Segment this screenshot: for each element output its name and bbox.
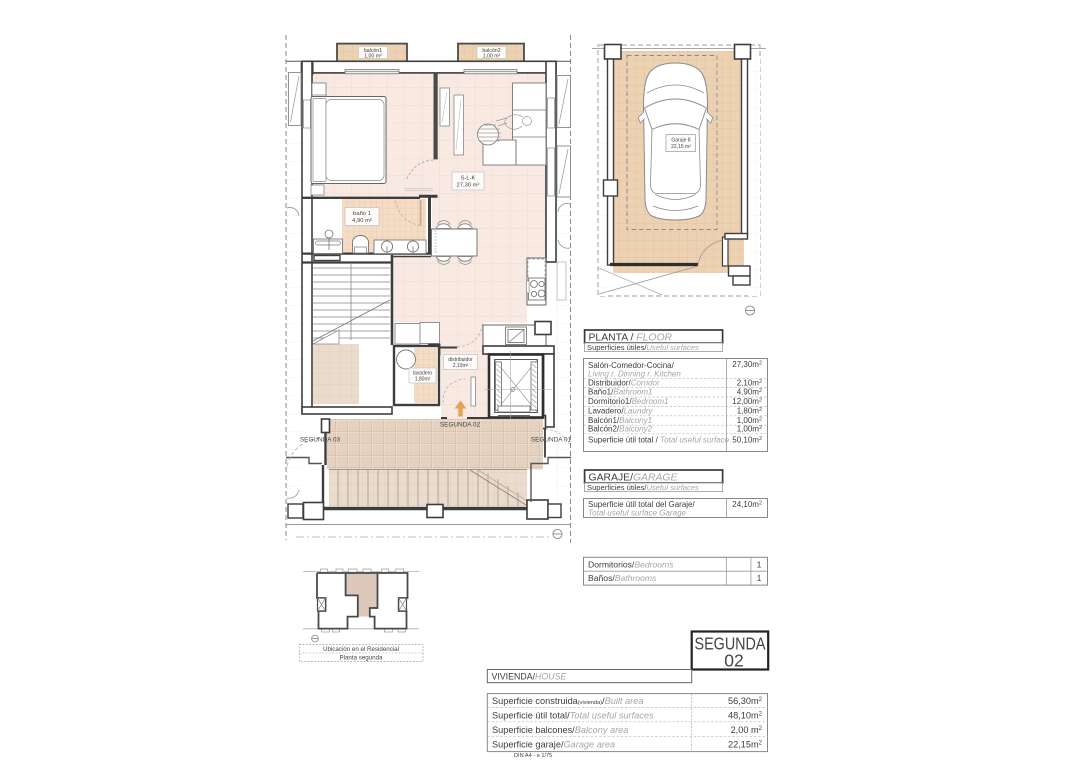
svg-text:1,80m²: 1,80m² bbox=[415, 377, 431, 383]
svg-text:SEGUNDA 01: SEGUNDA 01 bbox=[531, 437, 572, 444]
svg-text:1: 1 bbox=[757, 573, 762, 583]
svg-text:Distribuidor/Corridor: Distribuidor/Corridor bbox=[588, 378, 660, 387]
svg-text:12,00m2: 12,00m2 bbox=[732, 397, 762, 406]
svg-text:Dormitorios/Bedrooms: Dormitorios/Bedrooms bbox=[588, 559, 674, 569]
svg-text:2,00 m2: 2,00 m2 bbox=[731, 725, 763, 735]
svg-text:VIVIENDA/HOUSE: VIVIENDA/HOUSE bbox=[492, 671, 567, 681]
svg-text:baño 1: baño 1 bbox=[353, 211, 371, 217]
svg-text:2,10m2: 2,10m2 bbox=[737, 378, 762, 387]
svg-text:Superficies útiles/Useful surf: Superficies útiles/Useful surfaces bbox=[587, 343, 699, 352]
svg-text:Dormitorio1/Bedroom1: Dormitorio1/Bedroom1 bbox=[588, 397, 669, 406]
svg-text:4,90 m²: 4,90 m² bbox=[352, 218, 372, 224]
svg-text:GARAJE/GARAGE: GARAJE/GARAGE bbox=[589, 472, 679, 483]
svg-text:1,00m2: 1,00m2 bbox=[737, 425, 762, 434]
svg-text:02: 02 bbox=[724, 651, 743, 671]
svg-text:56,30m2: 56,30m2 bbox=[728, 696, 763, 706]
svg-text:27,30 m²: 27,30 m² bbox=[457, 183, 480, 189]
svg-text:Superficies útiles/Useful surf: Superficies útiles/Useful surfaces bbox=[587, 483, 699, 492]
svg-text:Lavadero/Laundry: Lavadero/Laundry bbox=[588, 407, 654, 416]
svg-text:SEGUNDA 02: SEGUNDA 02 bbox=[440, 422, 481, 429]
svg-text:Superficie útil total / Total: Superficie útil total / Total useful sur… bbox=[588, 435, 730, 444]
svg-text:1,80m2: 1,80m2 bbox=[737, 407, 762, 416]
svg-text:Garaje 8: Garaje 8 bbox=[671, 138, 690, 144]
svg-text:4,90m2: 4,90m2 bbox=[737, 388, 762, 397]
svg-text:1,00m2: 1,00m2 bbox=[737, 416, 762, 425]
svg-text:SEGUNDA 03: SEGUNDA 03 bbox=[300, 437, 341, 444]
svg-text:Ubicación en el Residencial: Ubicación en el Residencial bbox=[323, 646, 399, 653]
svg-text:50,10m2: 50,10m2 bbox=[732, 435, 762, 444]
svg-text:DIN A4 - e 1/75: DIN A4 - e 1/75 bbox=[514, 753, 552, 759]
svg-text:22,15m2: 22,15m2 bbox=[728, 739, 763, 749]
svg-text:27,30m2: 27,30m2 bbox=[732, 360, 762, 369]
svg-text:Baños/Bathrooms: Baños/Bathrooms bbox=[588, 573, 657, 583]
svg-text:1: 1 bbox=[757, 559, 762, 569]
svg-text:PLANTA / FLOOR: PLANTA / FLOOR bbox=[589, 332, 673, 343]
svg-text:1,00 m²: 1,00 m² bbox=[483, 54, 501, 60]
svg-text:2,10m²: 2,10m² bbox=[453, 363, 469, 369]
svg-text:Baño1/Bathroom1: Baño1/Bathroom1 bbox=[588, 388, 653, 397]
svg-text:Superficie garaje/Garage area: Superficie garaje/Garage area bbox=[492, 739, 615, 749]
svg-text:48,10m2: 48,10m2 bbox=[728, 710, 763, 720]
svg-text:Balcón2/Balcony2: Balcón2/Balcony2 bbox=[588, 425, 653, 434]
svg-text:1,00 m²: 1,00 m² bbox=[364, 54, 382, 60]
svg-text:Superficie útil total/Total us: Superficie útil total/Total useful surfa… bbox=[492, 710, 654, 720]
svg-text:Living r. Dinning r. Kitche: Living r. Dinning r. Kitchen bbox=[588, 369, 681, 378]
svg-text:24,10m2: 24,10m2 bbox=[732, 500, 762, 509]
svg-text:Balcón1/Balcony1: Balcón1/Balcony1 bbox=[588, 416, 652, 425]
svg-text:Total useful surface Garage: Total useful surface Garage bbox=[588, 508, 687, 517]
svg-text:22,15 m²: 22,15 m² bbox=[671, 144, 691, 150]
svg-text:Planta segunda: Planta segunda bbox=[339, 655, 383, 662]
svg-text:S-L-K: S-L-K bbox=[461, 176, 476, 182]
svg-text:Superficie balcones/Balcony ar: Superficie balcones/Balcony area bbox=[492, 725, 628, 735]
svg-text:Superficie construida(vivienda: Superficie construida(vivienda)/Built ar… bbox=[492, 696, 643, 706]
